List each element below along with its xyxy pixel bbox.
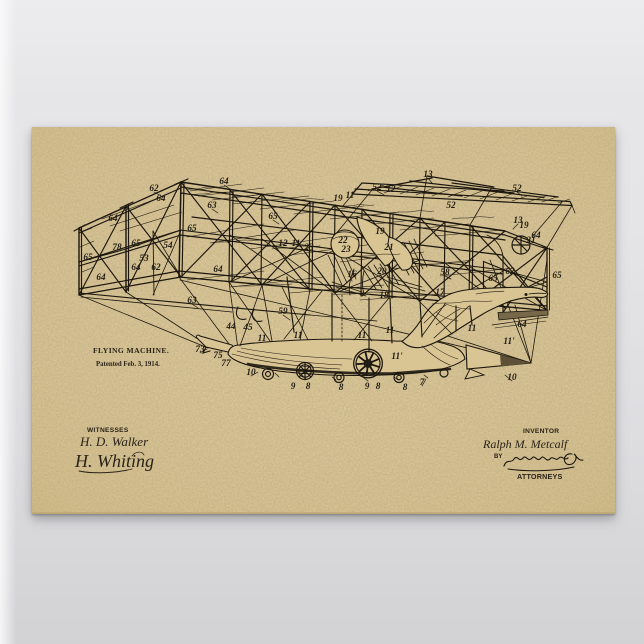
svg-text:13: 13	[423, 169, 433, 179]
svg-text:11: 11	[386, 325, 395, 335]
svg-text:19: 19	[333, 193, 343, 203]
svg-text:59: 59	[278, 306, 288, 316]
svg-text:Ralph M. Metcalf: Ralph M. Metcalf	[482, 437, 569, 451]
svg-text:63: 63	[187, 295, 197, 305]
svg-text:52: 52	[446, 200, 456, 210]
svg-text:54: 54	[163, 240, 173, 250]
svg-text:16: 16	[347, 269, 357, 279]
svg-text:64: 64	[131, 262, 141, 272]
svg-text:11: 11	[258, 333, 267, 343]
svg-text:20: 20	[376, 266, 387, 276]
svg-text:11: 11	[468, 323, 477, 333]
svg-text:11: 11	[294, 330, 303, 340]
svg-text:18: 18	[379, 290, 389, 300]
svg-text:H. D. Walker: H. D. Walker	[79, 434, 149, 449]
svg-text:65: 65	[83, 252, 93, 262]
svg-text:64: 64	[219, 176, 229, 186]
svg-text:8: 8	[403, 382, 408, 392]
svg-text:8: 8	[306, 381, 311, 391]
svg-text:8: 8	[376, 381, 381, 391]
svg-text:64: 64	[213, 264, 223, 274]
svg-text:11: 11	[358, 330, 367, 340]
svg-text:9: 9	[365, 381, 370, 391]
svg-text:65: 65	[131, 238, 141, 248]
svg-text:FLYING MACHINE.: FLYING MACHINE.	[93, 346, 169, 355]
svg-text:62: 62	[505, 266, 515, 276]
svg-text:ATTORNEYS: ATTORNEYS	[517, 472, 562, 481]
svg-text:Patented Feb. 3, 1914.: Patented Feb. 3, 1914.	[96, 361, 160, 368]
svg-text:65: 65	[268, 211, 278, 221]
svg-text:58: 58	[440, 267, 450, 277]
svg-text:64: 64	[517, 319, 527, 329]
svg-text:65: 65	[488, 273, 498, 283]
svg-text:WITNESSES: WITNESSES	[87, 427, 129, 434]
svg-text:78: 78	[112, 242, 122, 252]
svg-text:65: 65	[187, 223, 197, 233]
svg-text:19: 19	[375, 226, 385, 236]
svg-text:44: 44	[225, 321, 236, 331]
svg-text:64: 64	[96, 272, 106, 282]
svg-text:8: 8	[339, 382, 344, 392]
svg-text:62: 62	[149, 183, 159, 193]
svg-text:52: 52	[512, 183, 522, 193]
svg-text:64: 64	[108, 213, 118, 223]
svg-text:45: 45	[242, 322, 253, 332]
svg-text:11': 11'	[391, 351, 403, 361]
svg-text:63: 63	[207, 200, 217, 210]
svg-text:H. Whiting: H. Whiting	[74, 451, 154, 471]
svg-text:11: 11	[346, 190, 355, 200]
svg-text:INVENTOR: INVENTOR	[523, 428, 559, 435]
svg-text:21: 21	[383, 242, 393, 252]
svg-text:23: 23	[303, 242, 314, 252]
svg-text:10: 10	[507, 372, 517, 382]
svg-text:23: 23	[340, 244, 351, 254]
svg-text:19: 19	[519, 220, 529, 230]
svg-text:BY: BY	[494, 454, 502, 460]
svg-text:62: 62	[151, 262, 161, 272]
svg-text:77: 77	[221, 358, 231, 368]
svg-text:9: 9	[291, 381, 296, 391]
svg-text:12: 12	[278, 238, 288, 248]
svg-text:17: 17	[435, 287, 445, 297]
svg-text:52: 52	[372, 182, 382, 192]
svg-text:53: 53	[139, 253, 149, 263]
svg-text:64: 64	[531, 230, 541, 240]
svg-text:65: 65	[552, 270, 562, 280]
svg-text:11': 11'	[503, 336, 515, 346]
svg-text:12: 12	[386, 184, 396, 194]
